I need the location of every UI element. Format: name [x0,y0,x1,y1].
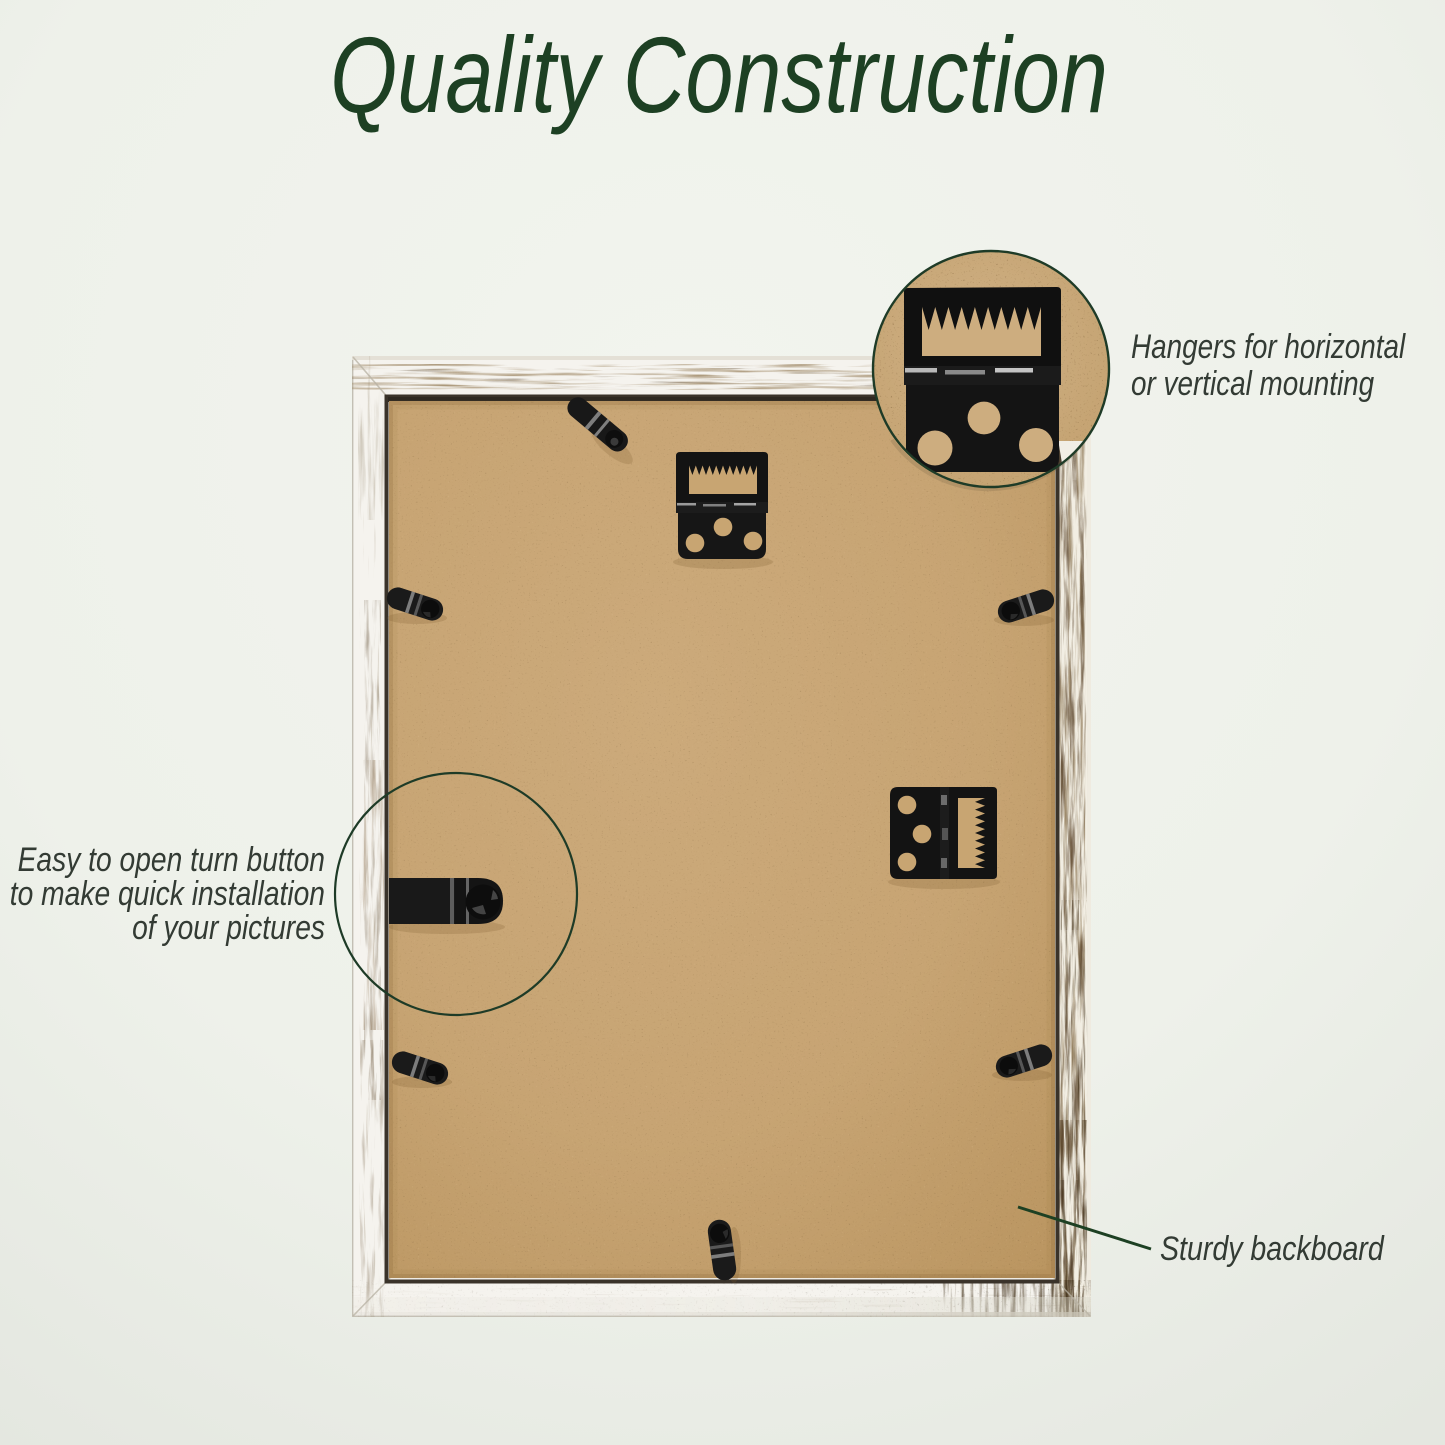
svg-text:or vertical mounting: or vertical mounting [1131,364,1375,402]
svg-text:to make quick installation: to make quick installation [10,875,325,913]
svg-text:Quality Construction: Quality Construction [330,14,1108,135]
svg-text:Easy to open turn button: Easy to open turn button [18,841,325,879]
svg-text:of your pictures: of your pictures [132,909,325,947]
svg-text:Hangers for horizontal: Hangers for horizontal [1131,327,1406,365]
svg-text:Sturdy backboard: Sturdy backboard [1160,1230,1385,1268]
